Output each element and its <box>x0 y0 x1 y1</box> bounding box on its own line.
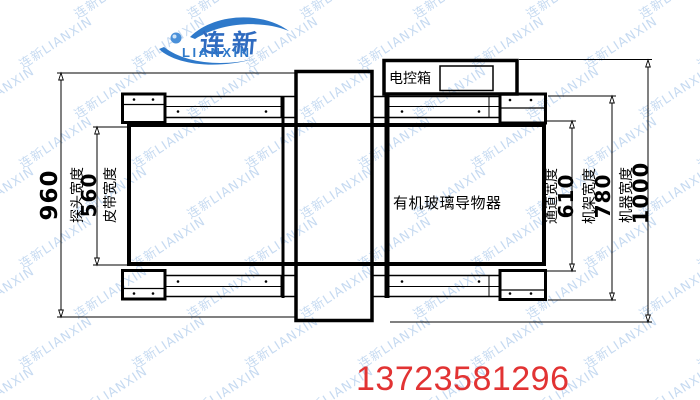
rail-end-box-bottom-right <box>500 271 546 300</box>
tunnel-label: 有机玻璃导物器 <box>393 192 502 213</box>
rail-end-box-top-left <box>123 94 166 123</box>
dim-machine-width-value: 1000 <box>629 162 653 224</box>
logo-en-text: LIANXIN <box>182 45 252 60</box>
detector-tunnel <box>296 72 372 321</box>
drawing-canvas: 连新LIANXIN连新LIANXIN连新LIANXIN连新LIANXIN连新LI… <box>0 0 700 400</box>
control-box-display <box>440 66 493 91</box>
control-box-label: 电控箱 <box>389 68 431 88</box>
machine-outline <box>123 61 546 321</box>
dim-probe-width-value: 960 <box>37 169 63 220</box>
dim-channel-width-value: 610 <box>554 174 578 219</box>
logo-dot-highlight <box>173 35 177 39</box>
rail-bar-top-right <box>372 97 500 118</box>
rail-bar-top-left <box>165 97 296 118</box>
dim-belt-width-label: 皮带宽度 <box>100 167 120 223</box>
rail-bar-bottom-left <box>165 276 296 297</box>
rail-end-box-top-right <box>500 94 546 123</box>
dim-belt-width-value: 560 <box>77 173 101 218</box>
phone-number: 13723581296 <box>356 360 570 399</box>
rail-end-box-bottom-left <box>123 271 166 300</box>
logo-dot-icon <box>171 33 182 44</box>
rail-bar-bottom-right <box>372 276 500 297</box>
dim-frame-width-value: 780 <box>591 174 615 219</box>
